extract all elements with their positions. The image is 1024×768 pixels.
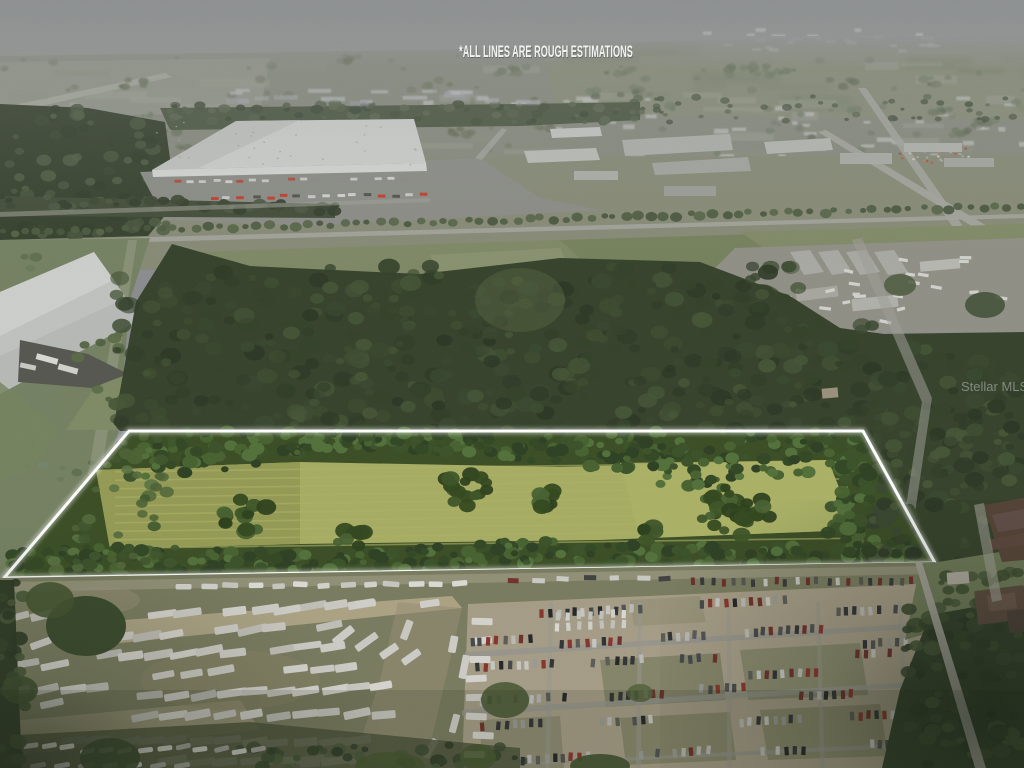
svg-text:*ALL LINES ARE ROUGH ESTIMATIO: *ALL LINES ARE ROUGH ESTIMATIONS bbox=[459, 42, 633, 61]
svg-text:Stellar MLS: Stellar MLS bbox=[961, 379, 1024, 394]
